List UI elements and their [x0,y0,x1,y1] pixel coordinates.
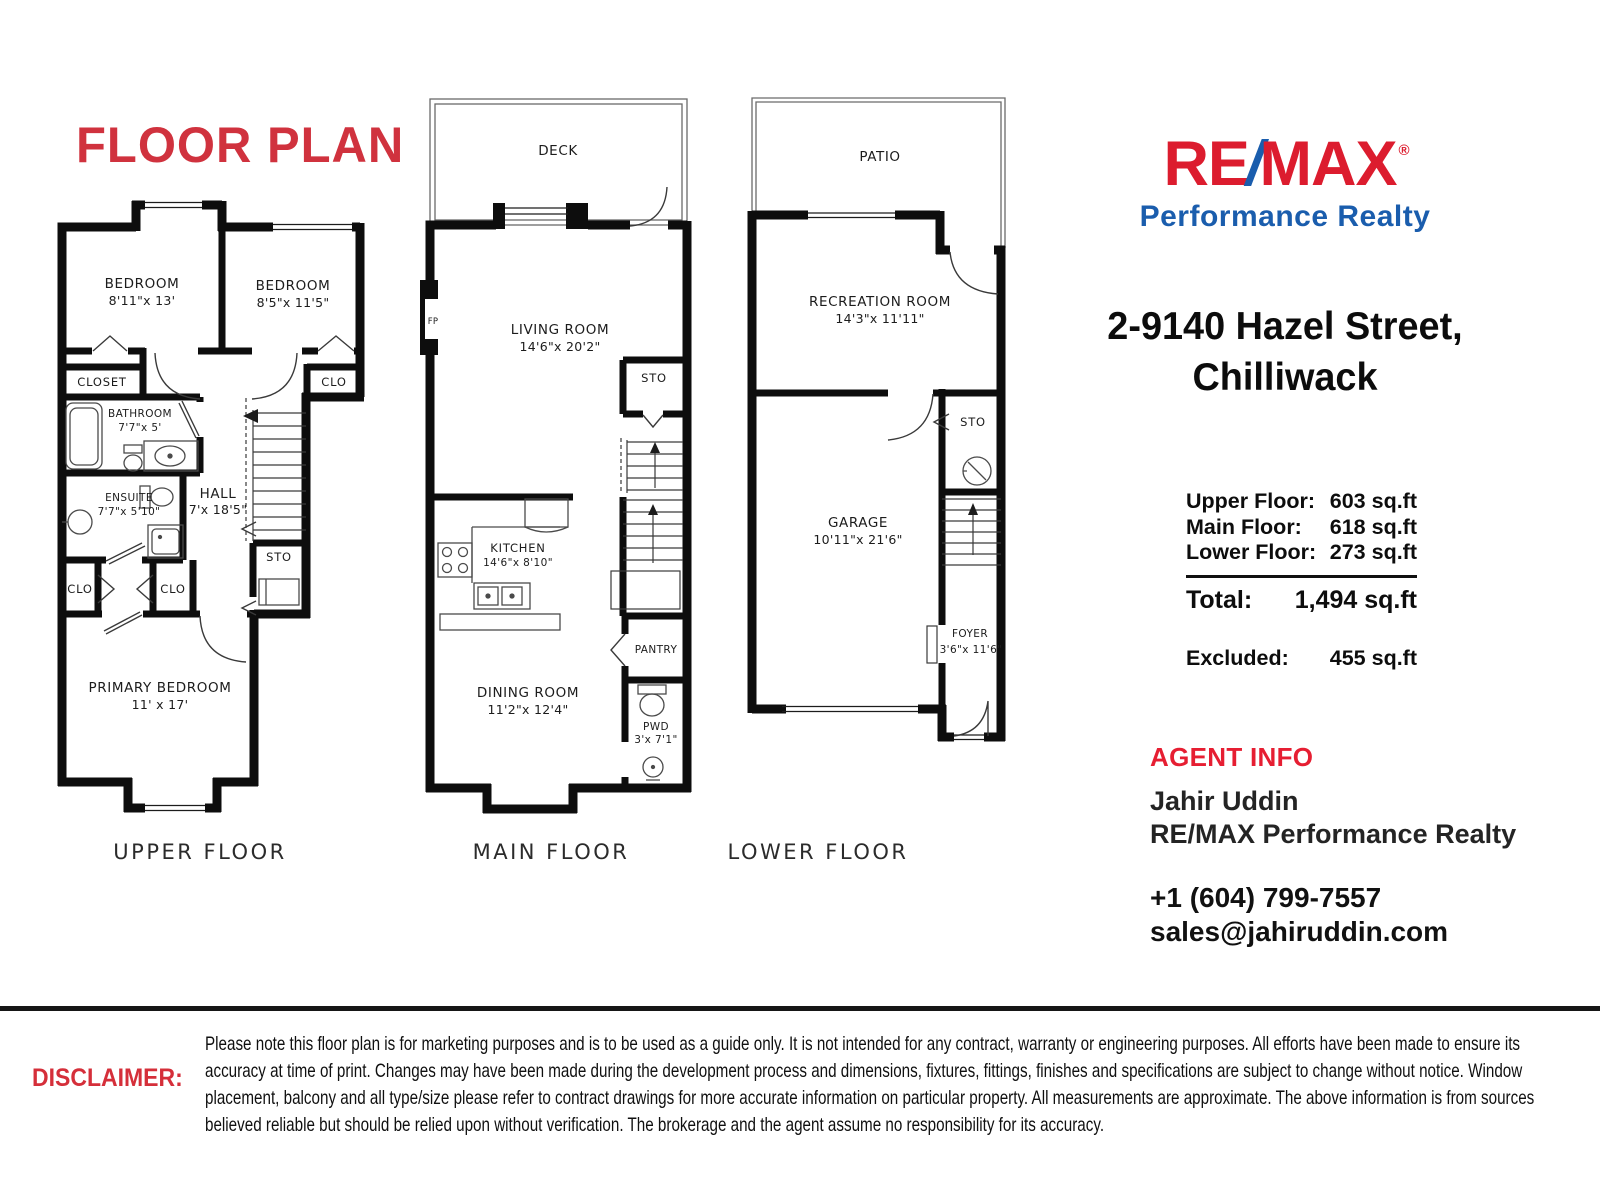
room-dims-bedroom1: 8'11"x 13' [109,293,176,308]
lower-windows [782,210,984,740]
room-label-ensuite: ENSUITE [105,492,153,504]
listing-address: 2-9140 Hazel Street, Chilliwack [1096,301,1474,403]
room-label-pantry: PANTRY [635,644,678,656]
area-row-main: Main Floor: 618 sq.ft [1186,515,1417,541]
area-label: Lower Floor: [1186,540,1316,566]
room-dims-living: 14'6"x 20'2" [519,339,600,354]
address-line1: 2-9140 Hazel Street, [1096,301,1474,352]
room-label-living: LIVING ROOM [511,322,609,338]
remax-tagline: Performance Realty [1100,200,1470,234]
room-label-sto-upper: STO [266,550,292,564]
lower-stairs [942,499,1001,565]
excluded-value: 455 sq.ft [1330,646,1417,671]
room-dims-bathroom: 7'7"x 5' [118,422,161,434]
area-row-total: Total: 1,494 sq.ft [1186,585,1417,615]
room-label-primary: PRIMARY BEDROOM [89,680,232,696]
disclaimer-heading: DISCLAIMER: [32,1064,183,1093]
disclaimer-text: Please note this floor plan is for marke… [205,1031,1551,1139]
lower-floor-plan: PATIO RECREATION ROOM 14'3"x 11'11" STO … [730,85,1030,815]
room-label-clo-right: CLO [321,375,346,389]
room-label-garage: GARAGE [828,515,888,531]
upper-floor-caption: UPPER FLOOR [90,840,310,864]
upper-floor-plan-drawing: BEDROOM 8'11"x 13' BEDROOM 8'5"x 11'5" C… [40,185,380,815]
room-dims-foyer: 3'6"x 11'6" [940,644,1003,656]
upper-floor-plan: BEDROOM 8'11"x 13' BEDROOM 8'5"x 11'5" C… [40,185,380,815]
room-label-clo-mid: CLO [160,582,185,596]
room-label-sto-main: STO [641,371,667,385]
room-dims-garage: 10'11"x 21'6" [813,532,902,547]
lower-water-heater [963,457,991,485]
area-value: 618 sq.ft [1330,515,1417,541]
agent-name: Jahir Uddin [1150,785,1570,818]
remax-re: RE [1163,129,1249,199]
lower-room-labels: PATIO RECREATION ROOM 14'3"x 11'11" STO … [809,149,1002,656]
room-label-dining: DINING ROOM [477,685,579,701]
agent-phone: +1 (604) 799-7557 [1150,881,1570,915]
agent-info-heading: AGENT INFO [1150,742,1570,773]
room-label-deck: DECK [538,143,578,159]
room-label-bedroom2: BEDROOM [256,278,331,294]
upper-stairs [243,398,306,541]
main-doors [611,187,667,666]
agent-company: RE/MAX Performance Realty [1150,818,1570,851]
main-floor-plan: DECK LIVING ROOM 14'6"x 20'2" FP STO KIT… [410,85,710,815]
excluded-label: Excluded: [1186,646,1289,671]
separator-bar [0,1006,1600,1011]
lower-walls-outer [752,211,1005,741]
room-label-patio: PATIO [859,149,900,165]
agent-info: AGENT INFO Jahir Uddin RE/MAX Performanc… [1150,742,1570,949]
room-label-fp: FP [428,317,438,327]
main-sliding-door [505,208,568,214]
area-label: Main Floor: [1186,515,1302,541]
room-label-rec: RECREATION ROOM [809,294,951,310]
remax-logo: RE/MAX® Performance Realty [1100,128,1470,234]
remax-wordmark: RE/MAX® [1100,128,1470,200]
lower-walls-interior [752,389,1001,709]
room-dims-primary: 11' x 17' [132,697,189,712]
room-dims-ensuite: 7'7"x 5'10" [98,506,161,518]
room-label-closet: CLOSET [77,375,127,389]
agent-email: sales@jahiruddin.com [1150,915,1570,949]
area-row-upper: Upper Floor: 603 sq.ft [1186,489,1417,515]
page-title: FLOOR PLAN [76,116,404,174]
address-line2: Chilliwack [1096,352,1474,403]
room-dims-dining: 11'2"x 12'4" [487,702,568,717]
room-dims-kitchen: 14'6"x 8'10" [483,557,553,569]
total-label: Total: [1186,585,1252,615]
area-label: Upper Floor: [1186,489,1315,515]
room-label-sto-lower: STO [960,415,986,429]
main-room-labels: DECK LIVING ROOM 14'6"x 20'2" FP STO KIT… [428,143,678,746]
area-divider [1186,575,1417,578]
area-value: 273 sq.ft [1330,540,1417,566]
lower-floor-plan-drawing: PATIO RECREATION ROOM 14'3"x 11'11" STO … [730,85,1030,815]
room-label-bedroom1: BEDROOM [105,276,180,292]
main-floor-caption: MAIN FLOOR [441,840,661,864]
room-dims-bedroom2: 8'5"x 11'5" [257,295,330,310]
room-dims-pwd: 3'x 7'1" [634,734,677,746]
lower-patio-outline [752,98,1005,248]
floor-plan-flyer: FLOOR PLAN [0,0,1600,1200]
room-label-pwd: PWD [643,721,669,733]
area-value: 603 sq.ft [1330,489,1417,515]
main-floor-plan-drawing: DECK LIVING ROOM 14'6"x 20'2" FP STO KIT… [410,85,710,815]
area-row-lower: Lower Floor: 273 sq.ft [1186,540,1417,566]
main-deck-outline [430,99,687,225]
room-dims-hall: 7'x 18'5" [189,502,248,517]
room-label-bathroom: BATHROOM [108,408,172,420]
room-label-hall: HALL [200,486,237,502]
room-label-clo-left: CLO [67,582,92,596]
room-label-foyer: FOYER [952,628,988,640]
remax-max: MAX [1259,129,1396,199]
area-table: Upper Floor: 603 sq.ft Main Floor: 618 s… [1186,489,1417,671]
total-value: 1,494 sq.ft [1295,585,1417,615]
registered-mark: ® [1398,142,1408,159]
upper-walls-interior [62,205,360,614]
lower-floor-caption: LOWER FLOOR [708,840,928,864]
room-dims-rec: 14'3"x 11'11" [835,311,924,326]
room-label-kitchen: KITCHEN [490,541,545,555]
area-row-excluded: Excluded: 455 sq.ft [1186,646,1417,671]
